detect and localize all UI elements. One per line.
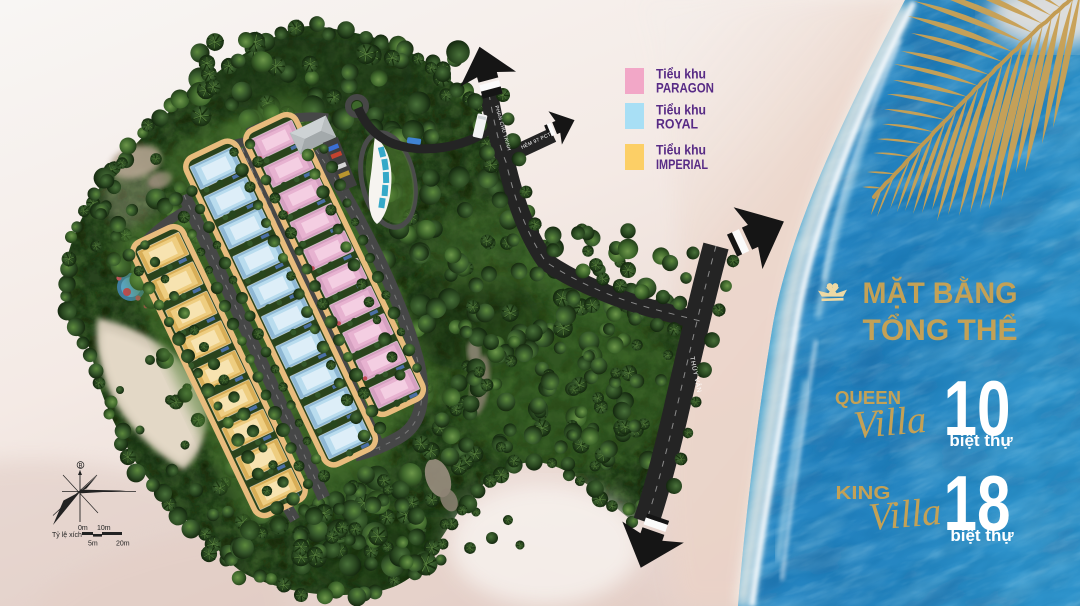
svg-text:biệt thự: biệt thự bbox=[949, 431, 1013, 450]
svg-text:5m: 5m bbox=[88, 541, 98, 548]
svg-text:biệt thự: biệt thự bbox=[950, 526, 1014, 545]
svg-text:ROYAL: ROYAL bbox=[656, 116, 698, 132]
svg-text:0m: 0m bbox=[78, 525, 88, 532]
svg-text:20m: 20m bbox=[116, 541, 130, 548]
svg-text:PARAGON: PARAGON bbox=[656, 80, 714, 96]
svg-text:Villa: Villa bbox=[852, 398, 928, 447]
svg-text:Tỷ lệ xích: Tỷ lệ xích bbox=[52, 532, 82, 539]
svg-text:B: B bbox=[78, 464, 82, 470]
svg-text:10m: 10m bbox=[97, 525, 111, 532]
svg-text:TỔNG THỂ: TỔNG THỂ bbox=[863, 313, 1018, 347]
svg-text:Villa: Villa bbox=[867, 490, 943, 539]
svg-text:IMPERIAL: IMPERIAL bbox=[656, 156, 708, 172]
svg-text:MẶT BẰNG: MẶT BẰNG bbox=[863, 276, 1018, 310]
